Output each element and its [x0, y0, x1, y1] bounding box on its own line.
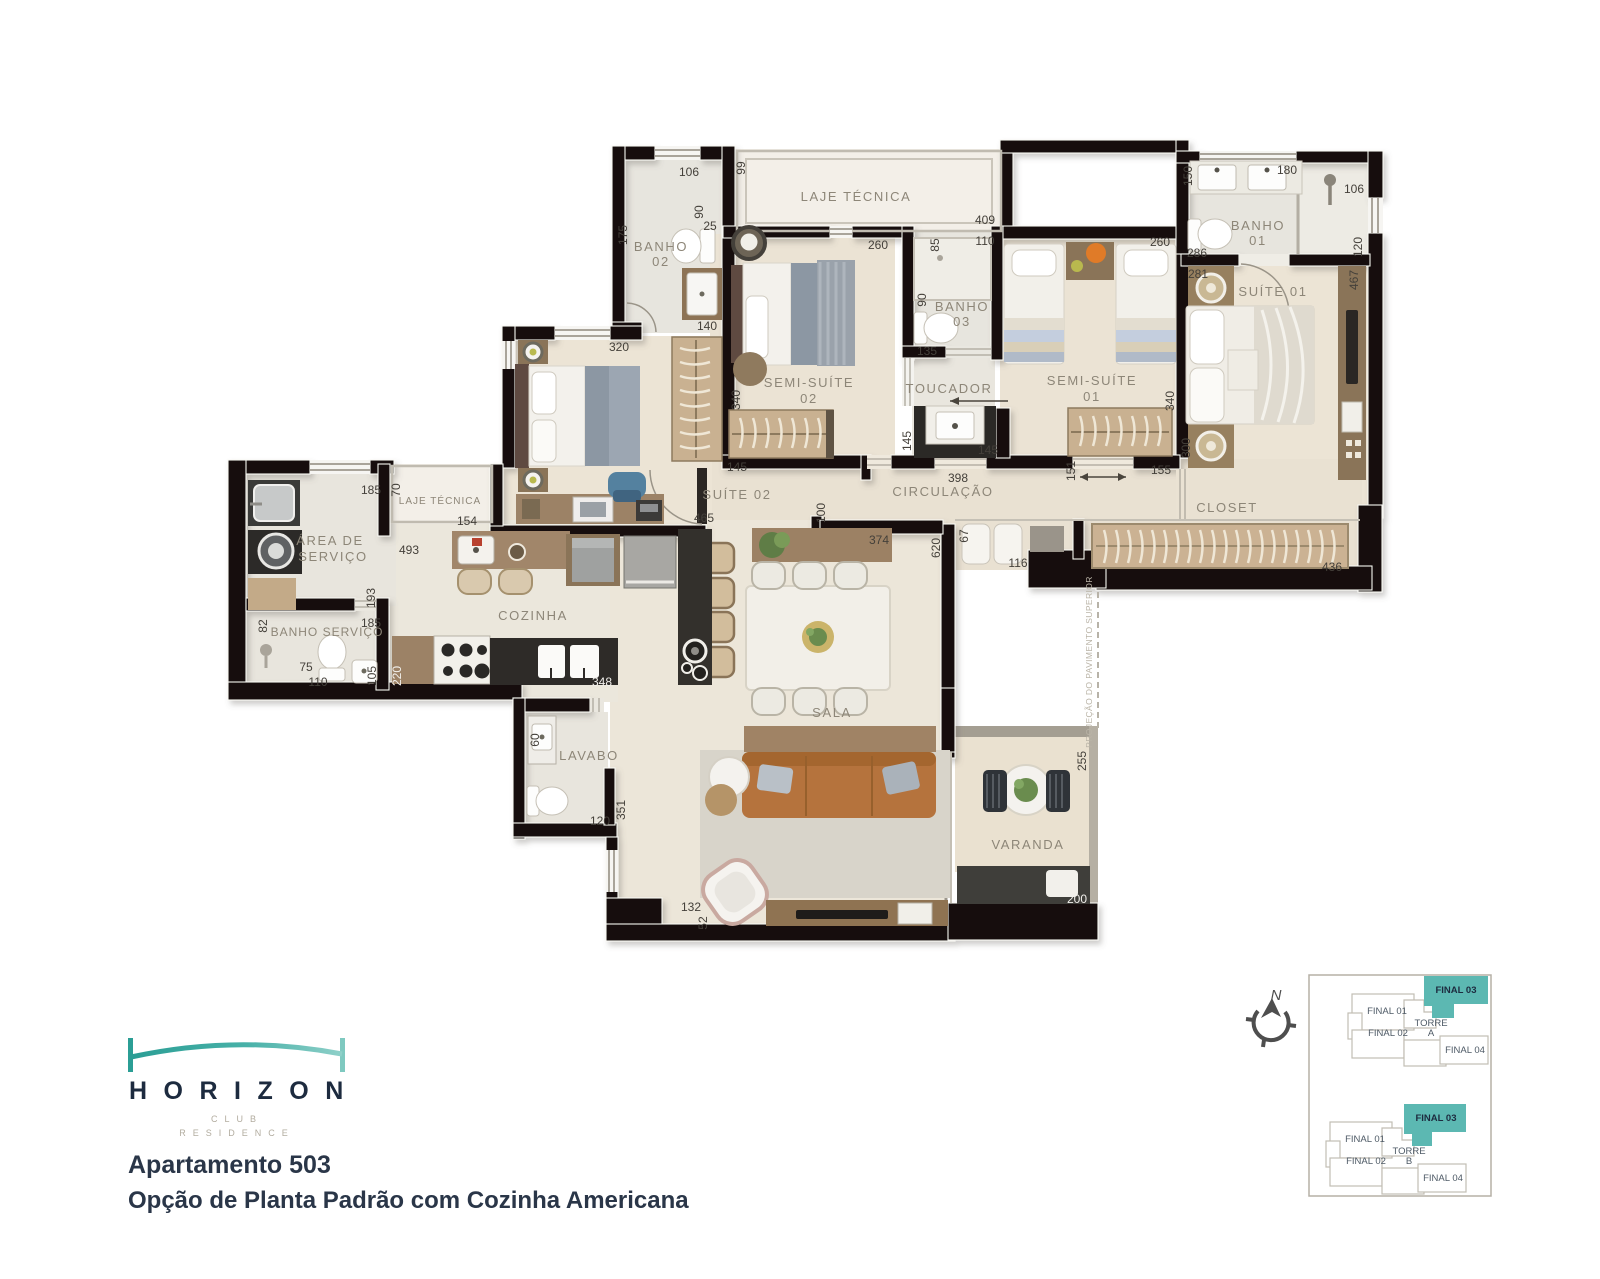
svg-text:N: N — [1271, 987, 1282, 1004]
svg-text:Apartamento 503: Apartamento 503 — [128, 1151, 331, 1179]
svg-text:PROJEÇÃO DO PAVIMENTO SUPERIOR: PROJEÇÃO DO PAVIMENTO SUPERIOR — [1084, 576, 1094, 748]
svg-text:255: 255 — [1075, 751, 1089, 771]
svg-text:75: 75 — [299, 660, 313, 674]
svg-text:SEMI-SUÍTE: SEMI-SUÍTE — [764, 375, 854, 390]
svg-text:TOUCADOR: TOUCADOR — [906, 381, 993, 396]
svg-text:132: 132 — [681, 900, 701, 914]
svg-text:436: 436 — [1322, 560, 1342, 574]
svg-text:70: 70 — [389, 483, 403, 497]
svg-text:116: 116 — [1008, 556, 1027, 570]
svg-text:374: 374 — [869, 533, 889, 547]
svg-text:85: 85 — [928, 238, 942, 252]
svg-text:RESIDENCE: RESIDENCE — [179, 1128, 295, 1138]
svg-text:BANHO: BANHO — [935, 299, 989, 314]
svg-text:60: 60 — [528, 733, 542, 747]
svg-text:BANHO: BANHO — [1231, 218, 1285, 233]
svg-text:106: 106 — [679, 165, 699, 179]
svg-text:175: 175 — [616, 225, 630, 245]
svg-text:398: 398 — [948, 471, 968, 485]
svg-text:151: 151 — [1064, 461, 1078, 481]
svg-text:90: 90 — [915, 293, 929, 307]
svg-text:A: A — [1428, 1028, 1435, 1039]
svg-text:B: B — [1406, 1156, 1412, 1167]
svg-text:110: 110 — [975, 234, 994, 248]
svg-text:155: 155 — [1151, 463, 1171, 477]
svg-text:FINAL 01: FINAL 01 — [1367, 1006, 1407, 1017]
svg-text:LAJE TÉCNICA: LAJE TÉCNICA — [399, 494, 481, 507]
svg-text:320: 320 — [609, 340, 629, 354]
svg-text:SUÍTE 01: SUÍTE 01 — [1238, 284, 1307, 299]
svg-text:493: 493 — [399, 543, 419, 557]
svg-text:SALA: SALA — [812, 705, 852, 720]
svg-text:620: 620 — [929, 538, 943, 558]
svg-text:193: 193 — [364, 588, 378, 608]
svg-text:185: 185 — [361, 616, 381, 630]
svg-text:FINAL 03: FINAL 03 — [1435, 985, 1476, 996]
svg-text:120: 120 — [590, 814, 610, 828]
svg-text:SERVIÇO: SERVIÇO — [298, 549, 367, 564]
svg-text:SUÍTE 02: SUÍTE 02 — [702, 487, 771, 502]
svg-text:25: 25 — [703, 219, 717, 233]
svg-text:CIRCULAÇÃO: CIRCULAÇÃO — [892, 484, 993, 499]
svg-text:99: 99 — [734, 161, 748, 175]
svg-text:220: 220 — [390, 666, 404, 686]
svg-text:FINAL 02: FINAL 02 — [1368, 1028, 1408, 1039]
svg-text:180: 180 — [1277, 163, 1297, 177]
svg-text:LAVABO: LAVABO — [559, 748, 619, 763]
svg-text:120: 120 — [1351, 237, 1365, 257]
svg-text:145: 145 — [900, 431, 914, 451]
svg-text:90: 90 — [692, 205, 706, 219]
svg-text:185: 185 — [361, 483, 381, 497]
svg-text:154: 154 — [457, 514, 477, 528]
svg-text:106: 106 — [1344, 182, 1364, 196]
svg-text:FINAL 04: FINAL 04 — [1445, 1045, 1485, 1056]
svg-text:465: 465 — [694, 511, 714, 525]
svg-text:VARANDA: VARANDA — [991, 837, 1064, 852]
svg-text:351: 351 — [614, 800, 628, 820]
svg-text:FINAL 01: FINAL 01 — [1345, 1134, 1385, 1145]
svg-text:ÁREA DE: ÁREA DE — [296, 533, 364, 548]
svg-text:01: 01 — [1083, 389, 1101, 404]
svg-text:340: 340 — [1163, 391, 1177, 411]
svg-text:FINAL 02: FINAL 02 — [1346, 1156, 1386, 1167]
svg-text:340: 340 — [729, 390, 743, 410]
svg-text:140: 140 — [697, 319, 717, 333]
svg-text:82: 82 — [256, 619, 270, 633]
svg-text:260: 260 — [868, 238, 888, 252]
svg-text:409: 409 — [975, 213, 995, 227]
svg-text:467: 467 — [1347, 270, 1361, 290]
svg-text:135: 135 — [917, 344, 937, 358]
svg-text:300: 300 — [1179, 438, 1193, 458]
svg-text:HORIZON: HORIZON — [129, 1077, 360, 1105]
svg-text:145: 145 — [727, 460, 747, 474]
svg-text:COZINHA: COZINHA — [498, 608, 568, 623]
svg-text:CLUB: CLUB — [211, 1114, 263, 1124]
svg-text:52: 52 — [696, 916, 710, 930]
svg-text:150: 150 — [1181, 166, 1195, 186]
svg-text:CLOSET: CLOSET — [1196, 500, 1258, 515]
svg-text:110: 110 — [308, 675, 327, 689]
svg-text:100: 100 — [814, 503, 828, 523]
svg-text:LAJE TÉCNICA: LAJE TÉCNICA — [801, 189, 912, 204]
svg-text:145: 145 — [978, 443, 998, 457]
svg-text:260: 260 — [1150, 235, 1170, 249]
svg-text:02: 02 — [652, 254, 670, 269]
svg-text:SEMI-SUÍTE: SEMI-SUÍTE — [1047, 373, 1137, 388]
svg-text:FINAL 04: FINAL 04 — [1423, 1173, 1463, 1184]
svg-text:03: 03 — [953, 314, 971, 329]
svg-text:BANHO: BANHO — [634, 239, 688, 254]
svg-text:01: 01 — [1249, 233, 1267, 248]
svg-text:02: 02 — [800, 391, 818, 406]
svg-text:281: 281 — [1188, 267, 1208, 281]
svg-text:200: 200 — [1067, 892, 1087, 906]
svg-text:67: 67 — [957, 529, 971, 543]
svg-text:105: 105 — [365, 666, 379, 686]
svg-text:286: 286 — [1187, 246, 1207, 260]
svg-text:348: 348 — [592, 675, 612, 689]
svg-text:Opção de Planta Padrão com Coz: Opção de Planta Padrão com Cozinha Ameri… — [128, 1187, 689, 1214]
svg-text:FINAL 03: FINAL 03 — [1415, 1113, 1456, 1124]
